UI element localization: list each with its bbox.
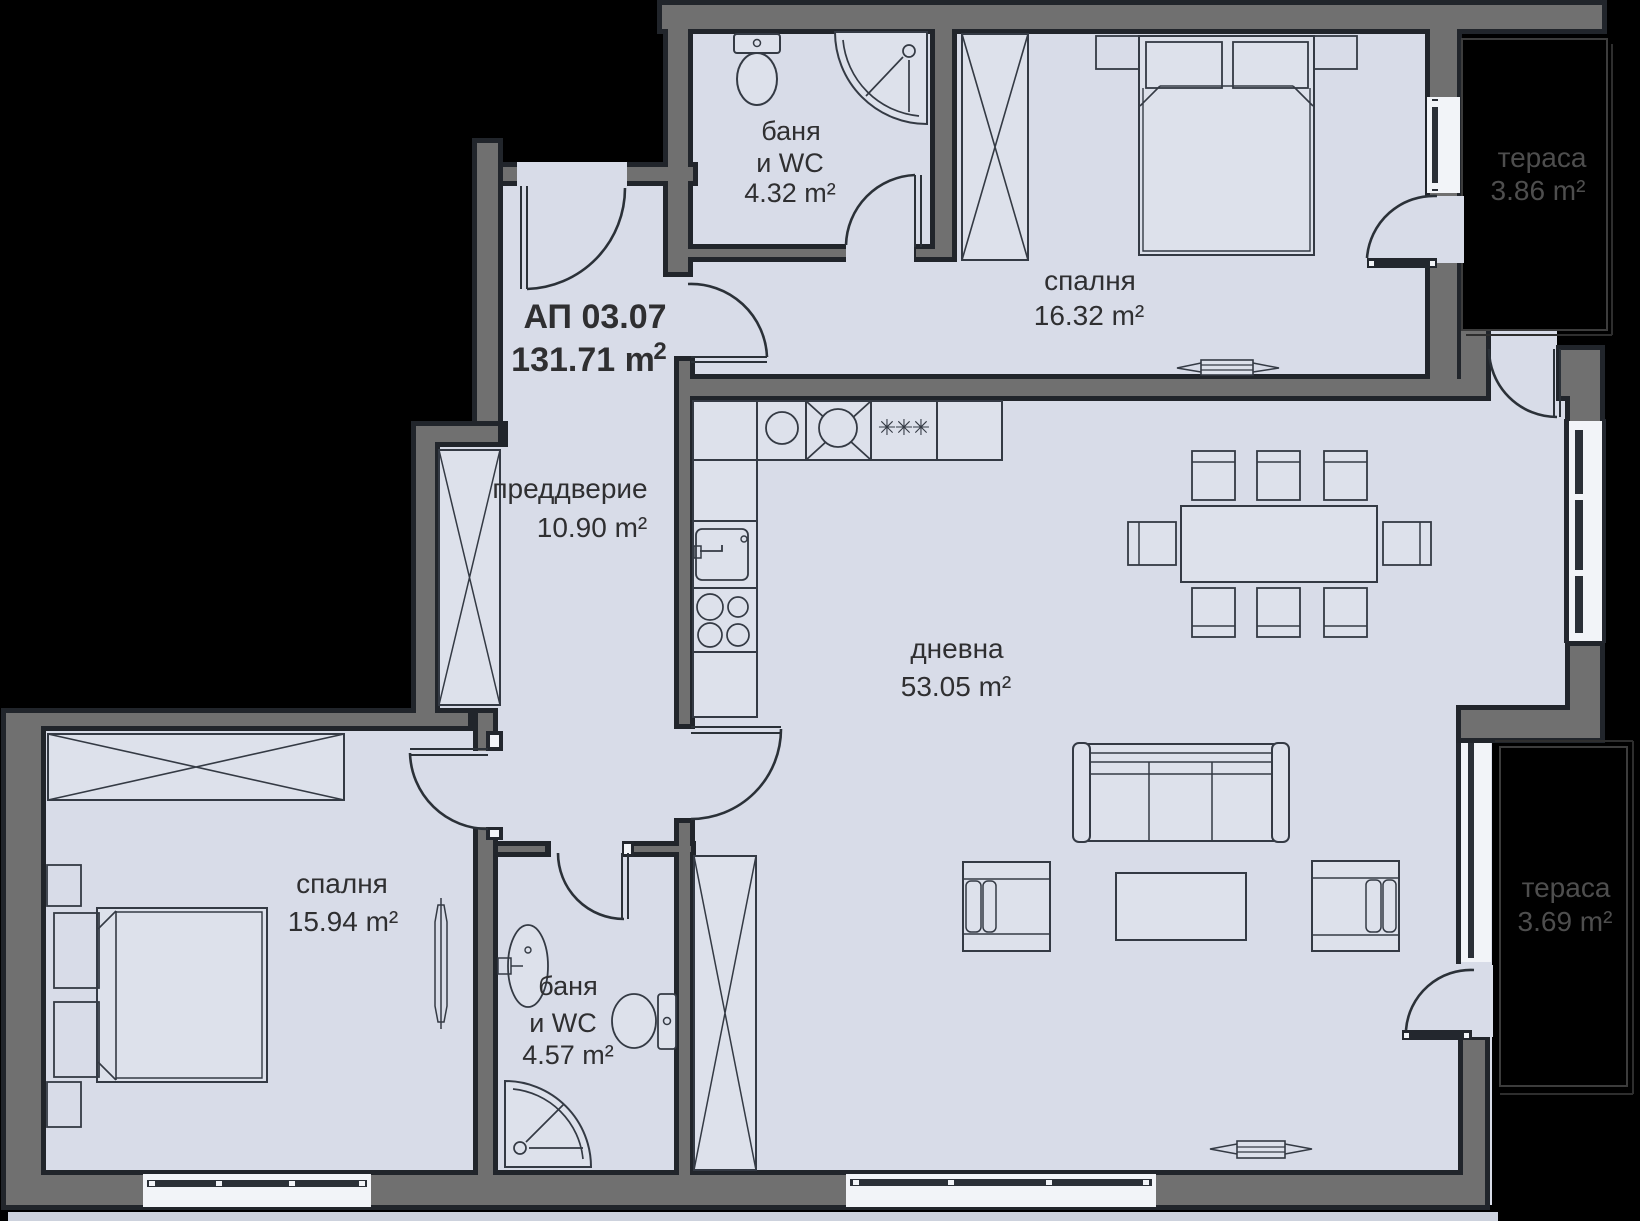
svg-text:16.32 m²: 16.32 m² xyxy=(1034,300,1145,331)
svg-text:и WC: и WC xyxy=(529,1008,597,1038)
svg-text:тераса: тераса xyxy=(1522,872,1611,903)
svg-text:10.90 m²: 10.90 m² xyxy=(537,512,648,543)
svg-text:15.94 m²: 15.94 m² xyxy=(288,906,399,937)
svg-text:4.32 m²: 4.32 m² xyxy=(744,178,836,208)
svg-text:131.71 m: 131.71 m xyxy=(511,341,655,379)
svg-text:2: 2 xyxy=(653,338,666,365)
svg-text:дневна: дневна xyxy=(910,633,1004,664)
svg-text:✳: ✳ xyxy=(912,415,930,440)
svg-text:тераса: тераса xyxy=(1498,142,1587,173)
svg-text:преддверие: преддверие xyxy=(492,473,647,504)
svg-text:АП 03.07: АП 03.07 xyxy=(523,298,666,336)
svg-text:баня: баня xyxy=(761,116,820,146)
svg-text:53.05 m²: 53.05 m² xyxy=(901,671,1012,702)
svg-text:3.69 m²: 3.69 m² xyxy=(1518,906,1613,937)
svg-text:и WC: и WC xyxy=(756,148,824,178)
svg-text:4.57 m²: 4.57 m² xyxy=(522,1040,614,1070)
svg-text:спалня: спалня xyxy=(1044,265,1136,296)
svg-text:✳: ✳ xyxy=(878,415,896,440)
svg-text:спалня: спалня xyxy=(296,868,388,899)
svg-text:3.86 m²: 3.86 m² xyxy=(1491,175,1586,206)
svg-text:✳: ✳ xyxy=(895,415,913,440)
svg-text:баня: баня xyxy=(538,971,597,1001)
